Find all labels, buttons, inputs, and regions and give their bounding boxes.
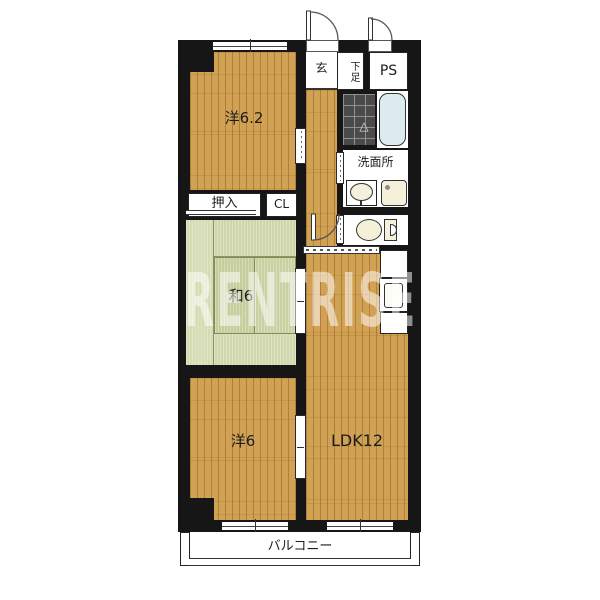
- sliding-door-divider: [297, 301, 304, 302]
- pillar-top-left: [190, 52, 214, 72]
- window-top: [213, 40, 287, 52]
- label-entrance: 玄: [306, 62, 337, 76]
- bath-drain-icon: △: [356, 120, 372, 134]
- kitchen-sink: [384, 283, 403, 308]
- floorplan-canvas: △: [0, 0, 600, 600]
- kitchen-counter-bottom: [380, 312, 408, 334]
- label-room-western-6: 洋6: [190, 433, 296, 450]
- vanity-sink: [350, 183, 373, 201]
- wall-right: [408, 40, 421, 520]
- label-oshiire: 押入: [188, 197, 261, 212]
- label-pipe-space: PS: [369, 63, 408, 79]
- sliding-door-western-ldk: [295, 415, 306, 479]
- washing-machine-pan: [381, 180, 407, 206]
- entrance-door-leaf: [307, 11, 311, 40]
- label-cl: CL: [266, 198, 297, 212]
- tatami-mat: [214, 334, 296, 365]
- ldk-dropped-wall-marker: [303, 246, 380, 254]
- window-center-tick: [360, 519, 361, 532]
- kitchen-sink-unit: [379, 278, 408, 312]
- toilet-tank: [384, 219, 397, 241]
- sliding-door-divider: [297, 447, 304, 448]
- toilet-bowl: [356, 219, 382, 241]
- window-center-tick: [250, 39, 251, 52]
- kitchen-counter-top: [380, 250, 408, 278]
- ps-door-threshold: [368, 40, 392, 52]
- label-room-ldk: LDK12: [306, 432, 408, 450]
- window-center-tick: [255, 519, 256, 532]
- ps-door-arc: [371, 19, 392, 40]
- wall-washroom-toilet: [343, 207, 408, 215]
- label-room-western-6-2: 洋6.2: [190, 110, 298, 127]
- ps-door-leaf: [369, 18, 373, 40]
- vanity-tap: [360, 200, 362, 205]
- entrance-door-threshold: [306, 40, 339, 52]
- tatami-mat: [214, 220, 296, 257]
- window-bottom-west: [222, 520, 288, 532]
- label-balcony: バルコニー: [180, 540, 420, 555]
- door-western-6-2: [295, 128, 306, 164]
- door-toilet: [336, 215, 344, 244]
- wall-japanese-western: [178, 365, 306, 378]
- sliding-door-japanese-ldk: [295, 268, 306, 334]
- entrance-door-arc: [310, 12, 338, 40]
- label-washroom: 洗面所: [343, 156, 408, 170]
- washing-pan-drain: [385, 185, 390, 190]
- toilet-tank-notch: [390, 224, 397, 236]
- pillar-bottom-left: [190, 498, 214, 520]
- label-shoe-cabinet: 下足: [343, 56, 359, 88]
- balcony-railing: [189, 558, 411, 566]
- label-room-japanese: 和6: [186, 288, 296, 305]
- hallway-floor: [306, 90, 337, 253]
- window-bottom-ldk: [327, 520, 393, 532]
- bathtub: [379, 93, 406, 146]
